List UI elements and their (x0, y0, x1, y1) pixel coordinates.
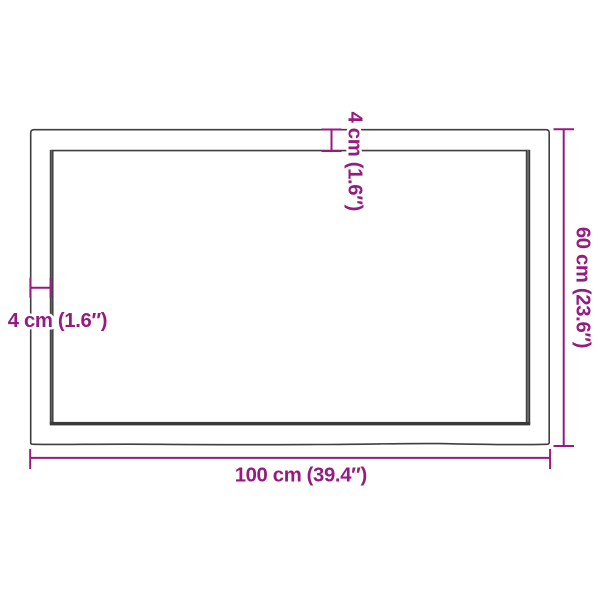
svg-text:4 cm (1.6″): 4 cm (1.6″) (344, 112, 366, 211)
svg-text:100 cm (39.4″): 100 cm (39.4″) (235, 465, 367, 487)
svg-text:4 cm (1.6″): 4 cm (1.6″) (8, 310, 107, 332)
svg-text:60 cm (23.6″): 60 cm (23.6″) (572, 227, 594, 348)
